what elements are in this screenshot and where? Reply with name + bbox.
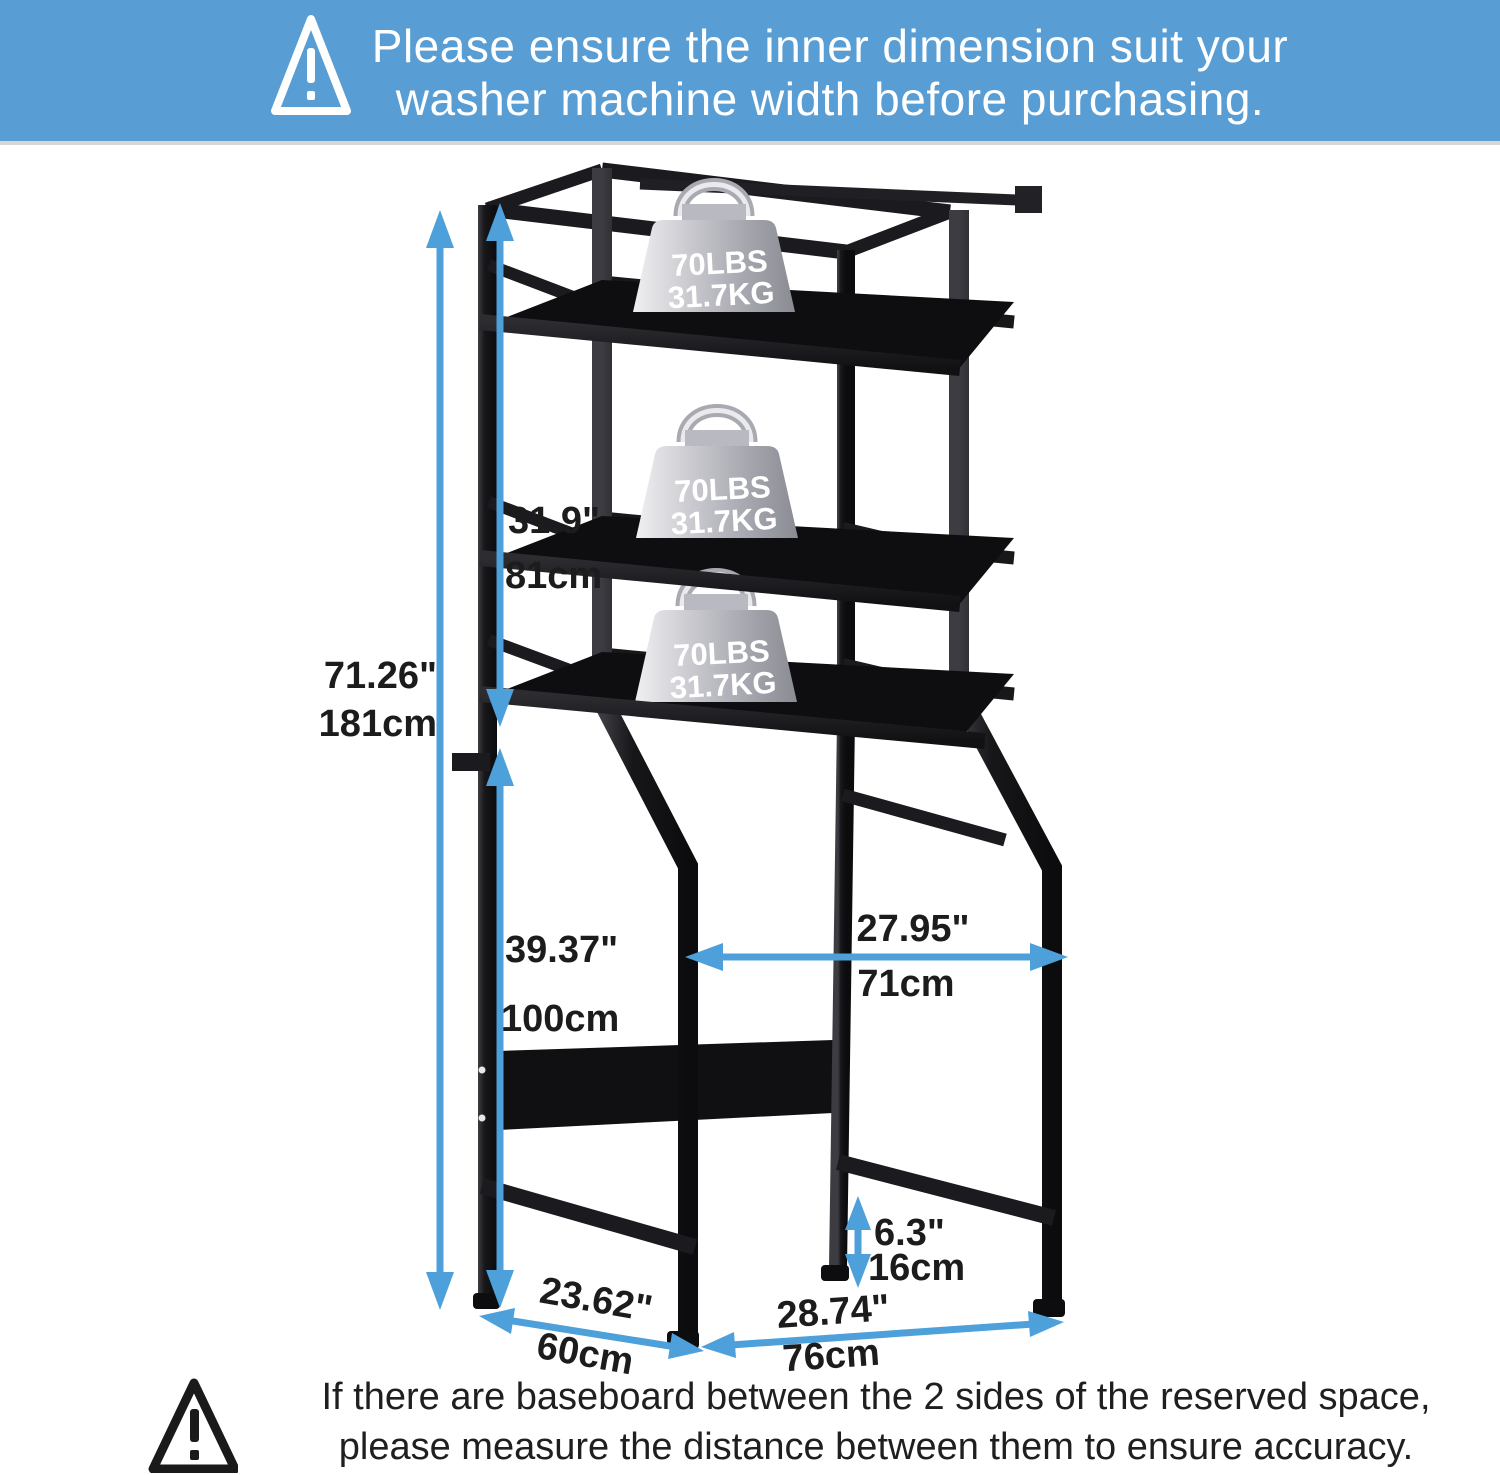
label-lower-height-in: 39.37"	[505, 929, 618, 971]
label-upper-height-cm: 81cm	[505, 555, 602, 597]
footer-note: If there are baseboard between the 2 sid…	[280, 1372, 1472, 1472]
label-outer-width-in: 28.74"	[775, 1287, 891, 1337]
label-inner-width-in: 27.95"	[856, 908, 969, 950]
label-total-height-in: 71.26"	[324, 655, 437, 697]
hanging-rod-endcap	[1015, 186, 1042, 213]
label-base-rail-height-cm: 16cm	[868, 1247, 965, 1289]
dimension-arrows	[426, 203, 1068, 1359]
footer-line-2: please measure the distance between them…	[280, 1422, 1472, 1472]
arrow-total-height	[426, 210, 454, 1310]
label-depth-in: 23.62"	[537, 1270, 656, 1331]
dimension-labels: 71.26" 181cm 31.9" 81cm 39.37" 100cm 27.…	[319, 500, 970, 1383]
product-dimension-image: Please ensure the inner dimension suit y…	[0, 0, 1500, 1475]
weight-bottom-shelf: 70LBS 31.7KG	[635, 575, 797, 706]
label-lower-height-cm: 100cm	[501, 998, 619, 1040]
weight-label-kg: 31.7KG	[667, 275, 776, 316]
weight-label-kg: 31.7KG	[669, 665, 778, 706]
rack-back-panel	[498, 1040, 833, 1130]
screw-hole	[479, 1067, 486, 1074]
footer-warning-triangle-icon	[148, 1378, 238, 1473]
label-inner-width-cm: 71cm	[857, 963, 954, 1005]
footer-line-1: If there are baseboard between the 2 sid…	[280, 1372, 1472, 1422]
weight-top-shelf: 70LBS 31.7KG	[633, 185, 795, 316]
label-upper-height-in: 31.9"	[508, 500, 600, 542]
rear-left-leg	[478, 205, 497, 1297]
rear-right-leg	[838, 250, 846, 1268]
front-right-leg	[959, 210, 1052, 1302]
weight-label-kg: 31.7KG	[670, 501, 779, 542]
weight-middle-shelf: 70LBS 31.7KG	[636, 411, 798, 542]
rack-illustration: 70LBS 31.7KG 70LBS 31.7KG 70LBS 31.7KG	[0, 0, 1500, 1475]
label-total-height-cm: 181cm	[319, 703, 437, 745]
bottom-rails	[482, 1162, 1054, 1247]
screw-hole	[479, 1115, 486, 1122]
